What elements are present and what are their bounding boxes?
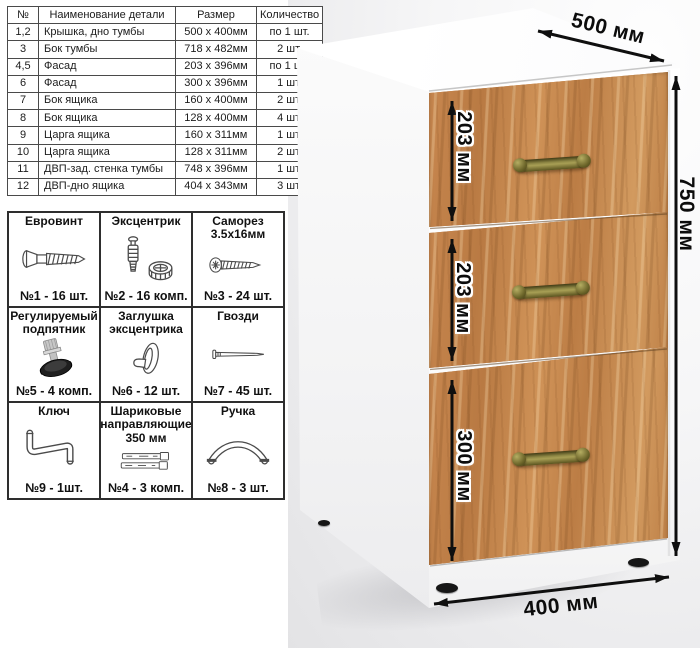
- hardware-item-title: Ручка: [221, 405, 255, 418]
- hardware-item: Заглушка эксцентрика №6 - 12 шт.: [100, 307, 192, 402]
- parts-cell: 748 x 396мм: [176, 161, 257, 178]
- cam-lock-icon: [103, 228, 189, 289]
- parts-cell: ДВП-зад. стенка тумбы: [39, 161, 176, 178]
- handle-rosette: [575, 280, 590, 295]
- hardware-item: Саморез 3.5х16мм №3 - 24 шт.: [192, 212, 284, 307]
- hardware-item-title: Регулируемый подпятник: [10, 310, 98, 337]
- hardware-item-qty: №2 - 16 комп.: [104, 289, 187, 303]
- self-tapping-screw-icon: [195, 242, 281, 289]
- parts-cell: 3: [8, 41, 39, 58]
- parts-cell: 203 x 396мм: [176, 58, 257, 75]
- pull-handle-icon: [195, 418, 281, 481]
- parts-row: 4,5Фасад203 x 396ммпо 1 шт.: [8, 58, 323, 75]
- hardware-item-qty: №7 - 45 шт.: [204, 384, 272, 398]
- parts-cell: 8: [8, 110, 39, 127]
- parts-cell: 160 x 311мм: [176, 127, 257, 144]
- parts-row: 12ДВП-дно ящика404 x 343мм3 шт.: [8, 178, 323, 195]
- hardware-item: Евровинт №1 - 16 шт.: [8, 212, 100, 307]
- parts-row: 8Бок ящика128 x 400мм4 шт.: [8, 110, 323, 127]
- dim-drawer2-height-label: 203 мм: [448, 250, 474, 346]
- handle-rosette: [575, 447, 590, 462]
- parts-cell: ДВП-дно ящика: [39, 178, 176, 195]
- cam-cap-icon: [103, 337, 189, 384]
- parts-cell: 160 x 400мм: [176, 92, 257, 109]
- parts-column-header: Размер: [176, 7, 257, 24]
- parts-row: 3Бок тумбы718 x 482мм2 шт.: [8, 41, 323, 58]
- parts-cell: по 1 шт.: [257, 24, 323, 41]
- hardware-item-qty: №8 - 3 шт.: [207, 481, 268, 495]
- parts-cell: Фасад: [39, 58, 176, 75]
- hardware-item-qty: №4 - 3 комп.: [108, 481, 184, 495]
- hardware-item-qty: №5 - 4 комп.: [16, 384, 92, 398]
- cabinet-foot: [318, 520, 330, 526]
- hardware-item: Эксцентрик №2 - 16 комп.: [100, 212, 192, 307]
- parts-table: №Наименование деталиРазмерКоличество 1,2…: [7, 6, 323, 196]
- parts-cell: Бок ящика: [39, 92, 176, 109]
- parts-cell: 9: [8, 127, 39, 144]
- parts-cell: 404 x 343мм: [176, 178, 257, 195]
- assembly-instruction-sheet: №Наименование деталиРазмерКоличество 1,2…: [0, 0, 700, 648]
- parts-column-header: №: [8, 7, 39, 24]
- nail-icon: [195, 323, 281, 384]
- parts-row: 1,2Крышка, дно тумбы500 x 400ммпо 1 шт.: [8, 24, 323, 41]
- hardware-item: Ручка №8 - 3 шт.: [192, 402, 284, 499]
- parts-cell: 128 x 400мм: [176, 110, 257, 127]
- hardware-item: Гвозди №7 - 45 шт.: [192, 307, 284, 402]
- hardware-item-title: Шариковые направляющие 350 мм: [100, 405, 191, 445]
- hardware-item-title: Заглушка эксцентрика: [103, 310, 189, 337]
- hardware-item-title: Гвозди: [217, 310, 259, 323]
- parts-cell: Царга ящика: [39, 144, 176, 161]
- handle-rosette: [576, 153, 591, 168]
- hardware-item-qty: №3 - 24 шт.: [204, 289, 272, 303]
- dim-drawer1-height-label: 203 мм: [449, 99, 475, 195]
- hardware-item-qty: №9 - 1шт.: [25, 481, 83, 495]
- hardware-item-title: Эксцентрик: [112, 215, 181, 228]
- parts-column-header: Количество: [257, 7, 323, 24]
- parts-table-header-row: №Наименование деталиРазмерКоличество: [8, 7, 323, 24]
- hardware-item-title: Ключ: [38, 405, 70, 418]
- parts-cell: Бок ящика: [39, 110, 176, 127]
- hardware-grid: Евровинт №1 - 16 шт.Эксцентрик №2 - 16 к…: [7, 211, 285, 500]
- cabinet-foot: [628, 558, 649, 567]
- hardware-item: Ключ №9 - 1шт.: [8, 402, 100, 499]
- parts-column-header: Наименование детали: [39, 7, 176, 24]
- parts-cell: Царга ящика: [39, 127, 176, 144]
- adjustable-foot-icon: [11, 337, 97, 384]
- hardware-item: Регулируемый подпятник №5 - 4 комп.: [8, 307, 100, 402]
- parts-cell: 7: [8, 92, 39, 109]
- parts-cell: 128 x 311мм: [176, 144, 257, 161]
- parts-cell: 4,5: [8, 58, 39, 75]
- parts-cell: 6: [8, 75, 39, 92]
- drawer-slides-icon: [103, 445, 189, 481]
- parts-cell: Крышка, дно тумбы: [39, 24, 176, 41]
- euro-screw-icon: [11, 228, 97, 289]
- hardware-item-title: Евровинт: [25, 215, 83, 228]
- parts-cell: Фасад: [39, 75, 176, 92]
- parts-cell: 10: [8, 144, 39, 161]
- parts-row: 6Фасад300 x 396мм1 шт.: [8, 75, 323, 92]
- hex-key-icon: [11, 418, 97, 481]
- dim-height-label: 750 мм: [674, 159, 698, 269]
- hardware-item: Шариковые направляющие 350 мм №4 - 3 ком…: [100, 402, 192, 499]
- parts-cell: 1,2: [8, 24, 39, 41]
- hardware-item-qty: №1 - 16 шт.: [20, 289, 88, 303]
- parts-cell: 500 x 400мм: [176, 24, 257, 41]
- parts-cell: 718 x 482мм: [176, 41, 257, 58]
- parts-cell: Бок тумбы: [39, 41, 176, 58]
- hardware-item-qty: №6 - 12 шт.: [112, 384, 180, 398]
- parts-row: 7Бок ящика160 x 400мм2 шт.: [8, 92, 323, 109]
- hardware-item-title: Саморез 3.5х16мм: [195, 215, 281, 242]
- dim-drawer3-height-label: 300 мм: [449, 418, 475, 514]
- parts-row: 10Царга ящика128 x 311мм2 шт.: [8, 144, 323, 161]
- cabinet-foot: [436, 583, 458, 593]
- parts-row: 11ДВП-зад. стенка тумбы748 x 396мм1 шт.: [8, 161, 323, 178]
- parts-cell: 300 x 396мм: [176, 75, 257, 92]
- parts-cell: 12: [8, 178, 39, 195]
- parts-cell: 11: [8, 161, 39, 178]
- parts-row: 9Царга ящика160 x 311мм1 шт.: [8, 127, 323, 144]
